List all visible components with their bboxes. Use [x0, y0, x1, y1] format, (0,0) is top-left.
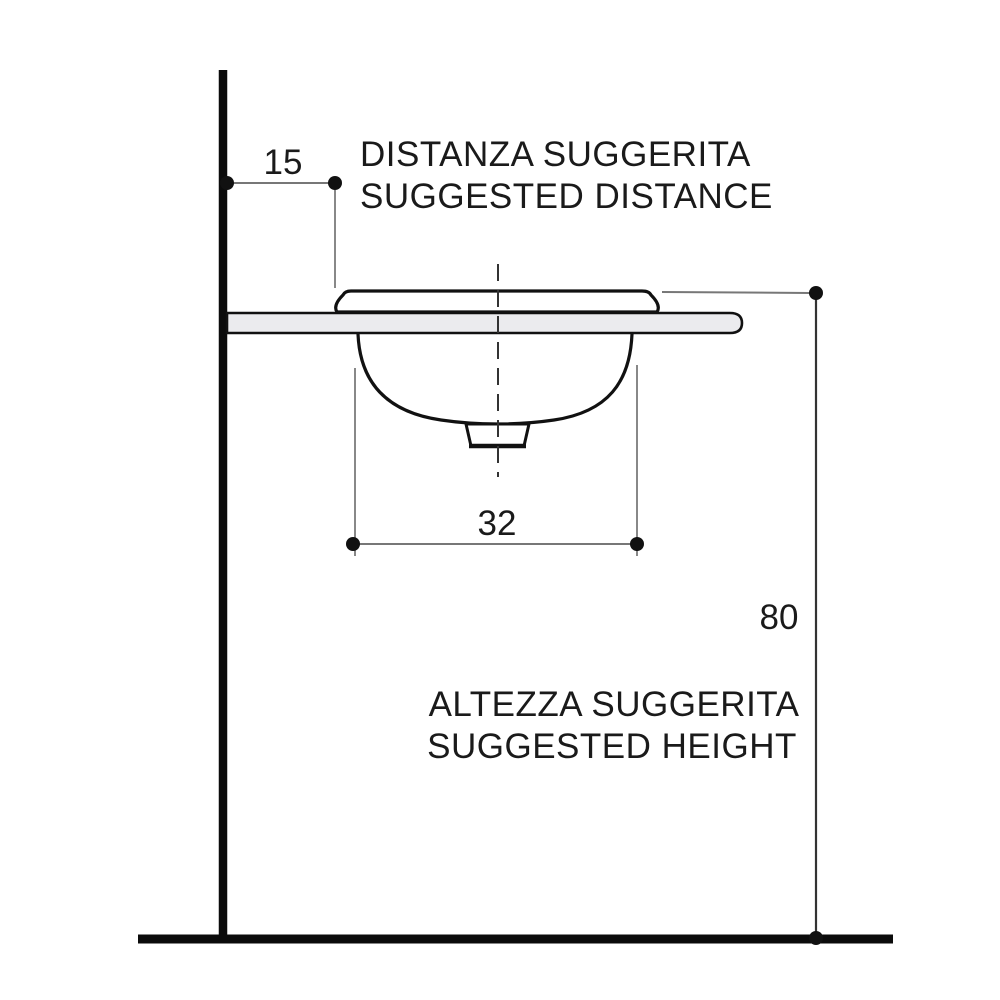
height-dimension-dot-top: [809, 286, 823, 300]
distance-dimension-dot-left: [220, 176, 234, 190]
distance-dimension-dot-right: [328, 176, 342, 190]
distance-value: 15: [264, 143, 303, 182]
basin-width-value: 32: [478, 504, 517, 543]
width-dimension-dot-right: [630, 537, 644, 551]
diagram-canvas: 15 32 80 DISTANZA SUGGERITA SUGGESTED DI…: [0, 0, 1000, 1000]
height-label-italian: ALTEZZA SUGGERITA: [429, 685, 800, 724]
height-value: 80: [760, 598, 799, 637]
countertop: [227, 313, 742, 333]
width-dimension-dot-left: [346, 537, 360, 551]
distance-label-english: SUGGESTED DISTANCE: [360, 177, 773, 216]
height-label-english: SUGGESTED HEIGHT: [427, 727, 797, 766]
height-dimension-dot-bottom: [809, 931, 823, 945]
distance-label-italian: DISTANZA SUGGERITA: [360, 135, 751, 174]
height-leader-line: [662, 292, 810, 293]
installation-diagram: 15 32 80 DISTANZA SUGGERITA SUGGESTED DI…: [0, 0, 1000, 1000]
basin-bowl: [358, 334, 632, 424]
